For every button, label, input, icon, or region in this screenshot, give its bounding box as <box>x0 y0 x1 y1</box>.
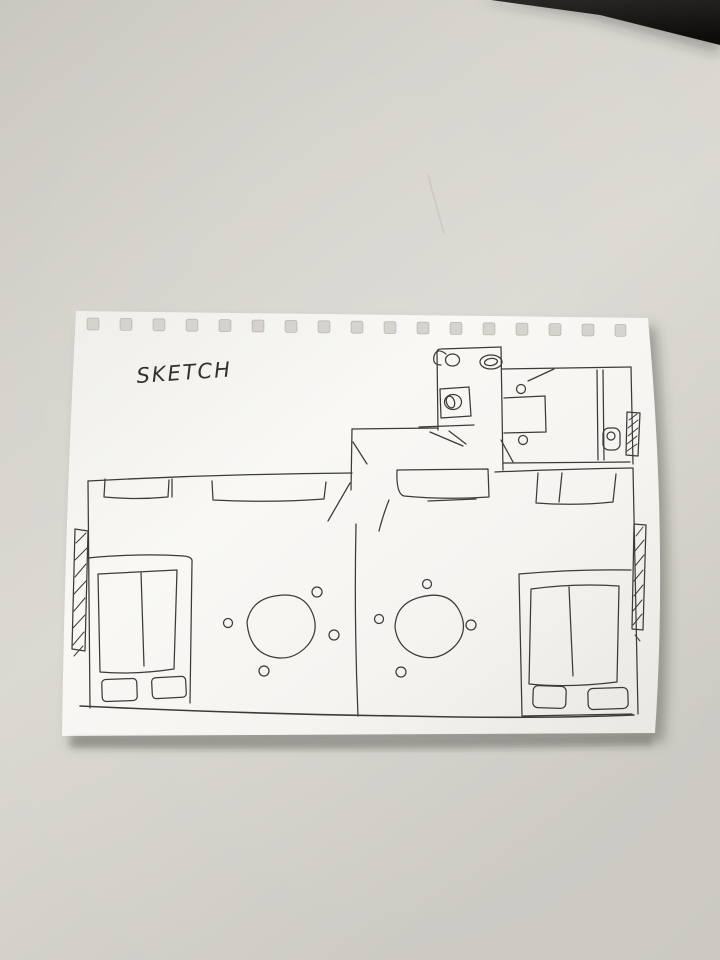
punch-hole <box>153 319 165 331</box>
punch-hole <box>252 320 264 332</box>
punch-hole <box>219 320 231 332</box>
punch-hole <box>384 322 396 334</box>
punch-hole <box>351 321 363 333</box>
punch-hole <box>318 321 330 333</box>
punch-hole <box>87 318 99 330</box>
punch-hole <box>615 324 626 336</box>
punch-hole <box>285 320 297 332</box>
photo-canvas: SKETCH <box>0 0 720 960</box>
punch-hole <box>483 323 495 335</box>
punch-hole <box>120 318 132 330</box>
punch-hole <box>582 324 594 336</box>
punch-hole <box>450 322 462 334</box>
punch-hole <box>549 324 561 336</box>
punch-hole <box>516 323 528 335</box>
punch-hole <box>417 322 429 334</box>
desk-photo: SKETCH <box>0 0 720 960</box>
punch-hole <box>186 319 198 331</box>
